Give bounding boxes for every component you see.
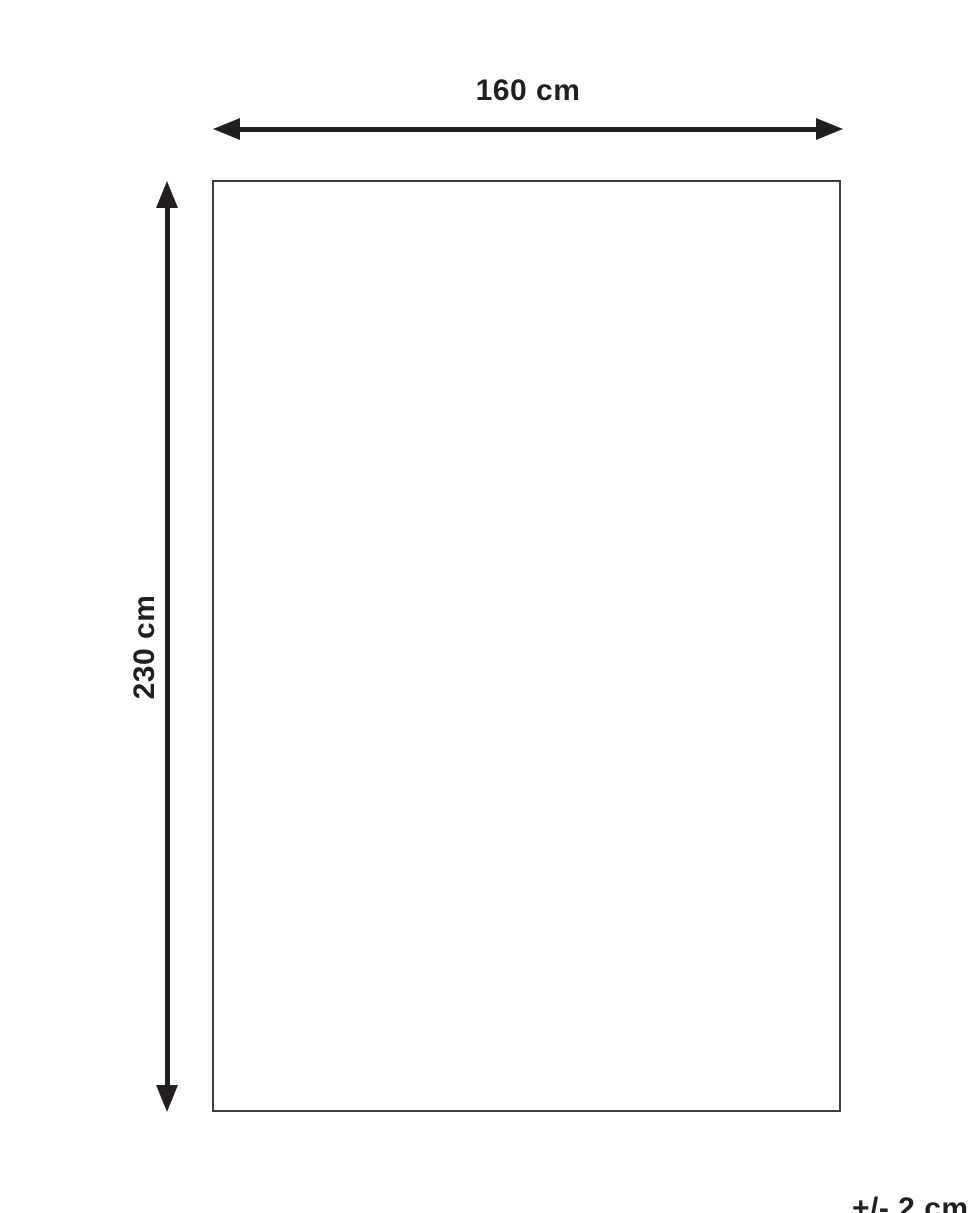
dimension-diagram: 160 cm 230 cm +/- 2 cm: [0, 0, 970, 1213]
height-dimension-label: 230 cm: [128, 332, 162, 962]
tolerance-label: +/- 2 cm: [852, 1192, 969, 1213]
width-dimension-label: 160 cm: [213, 74, 843, 108]
arrow-right-icon: [816, 118, 843, 140]
rug-outline: [212, 180, 841, 1112]
arrow-left-icon: [213, 118, 240, 140]
arrow-up-icon: [156, 181, 178, 208]
arrow-down-icon: [156, 1085, 178, 1112]
width-dimension-arrow: [232, 127, 824, 132]
height-dimension-arrow: [165, 200, 170, 1092]
